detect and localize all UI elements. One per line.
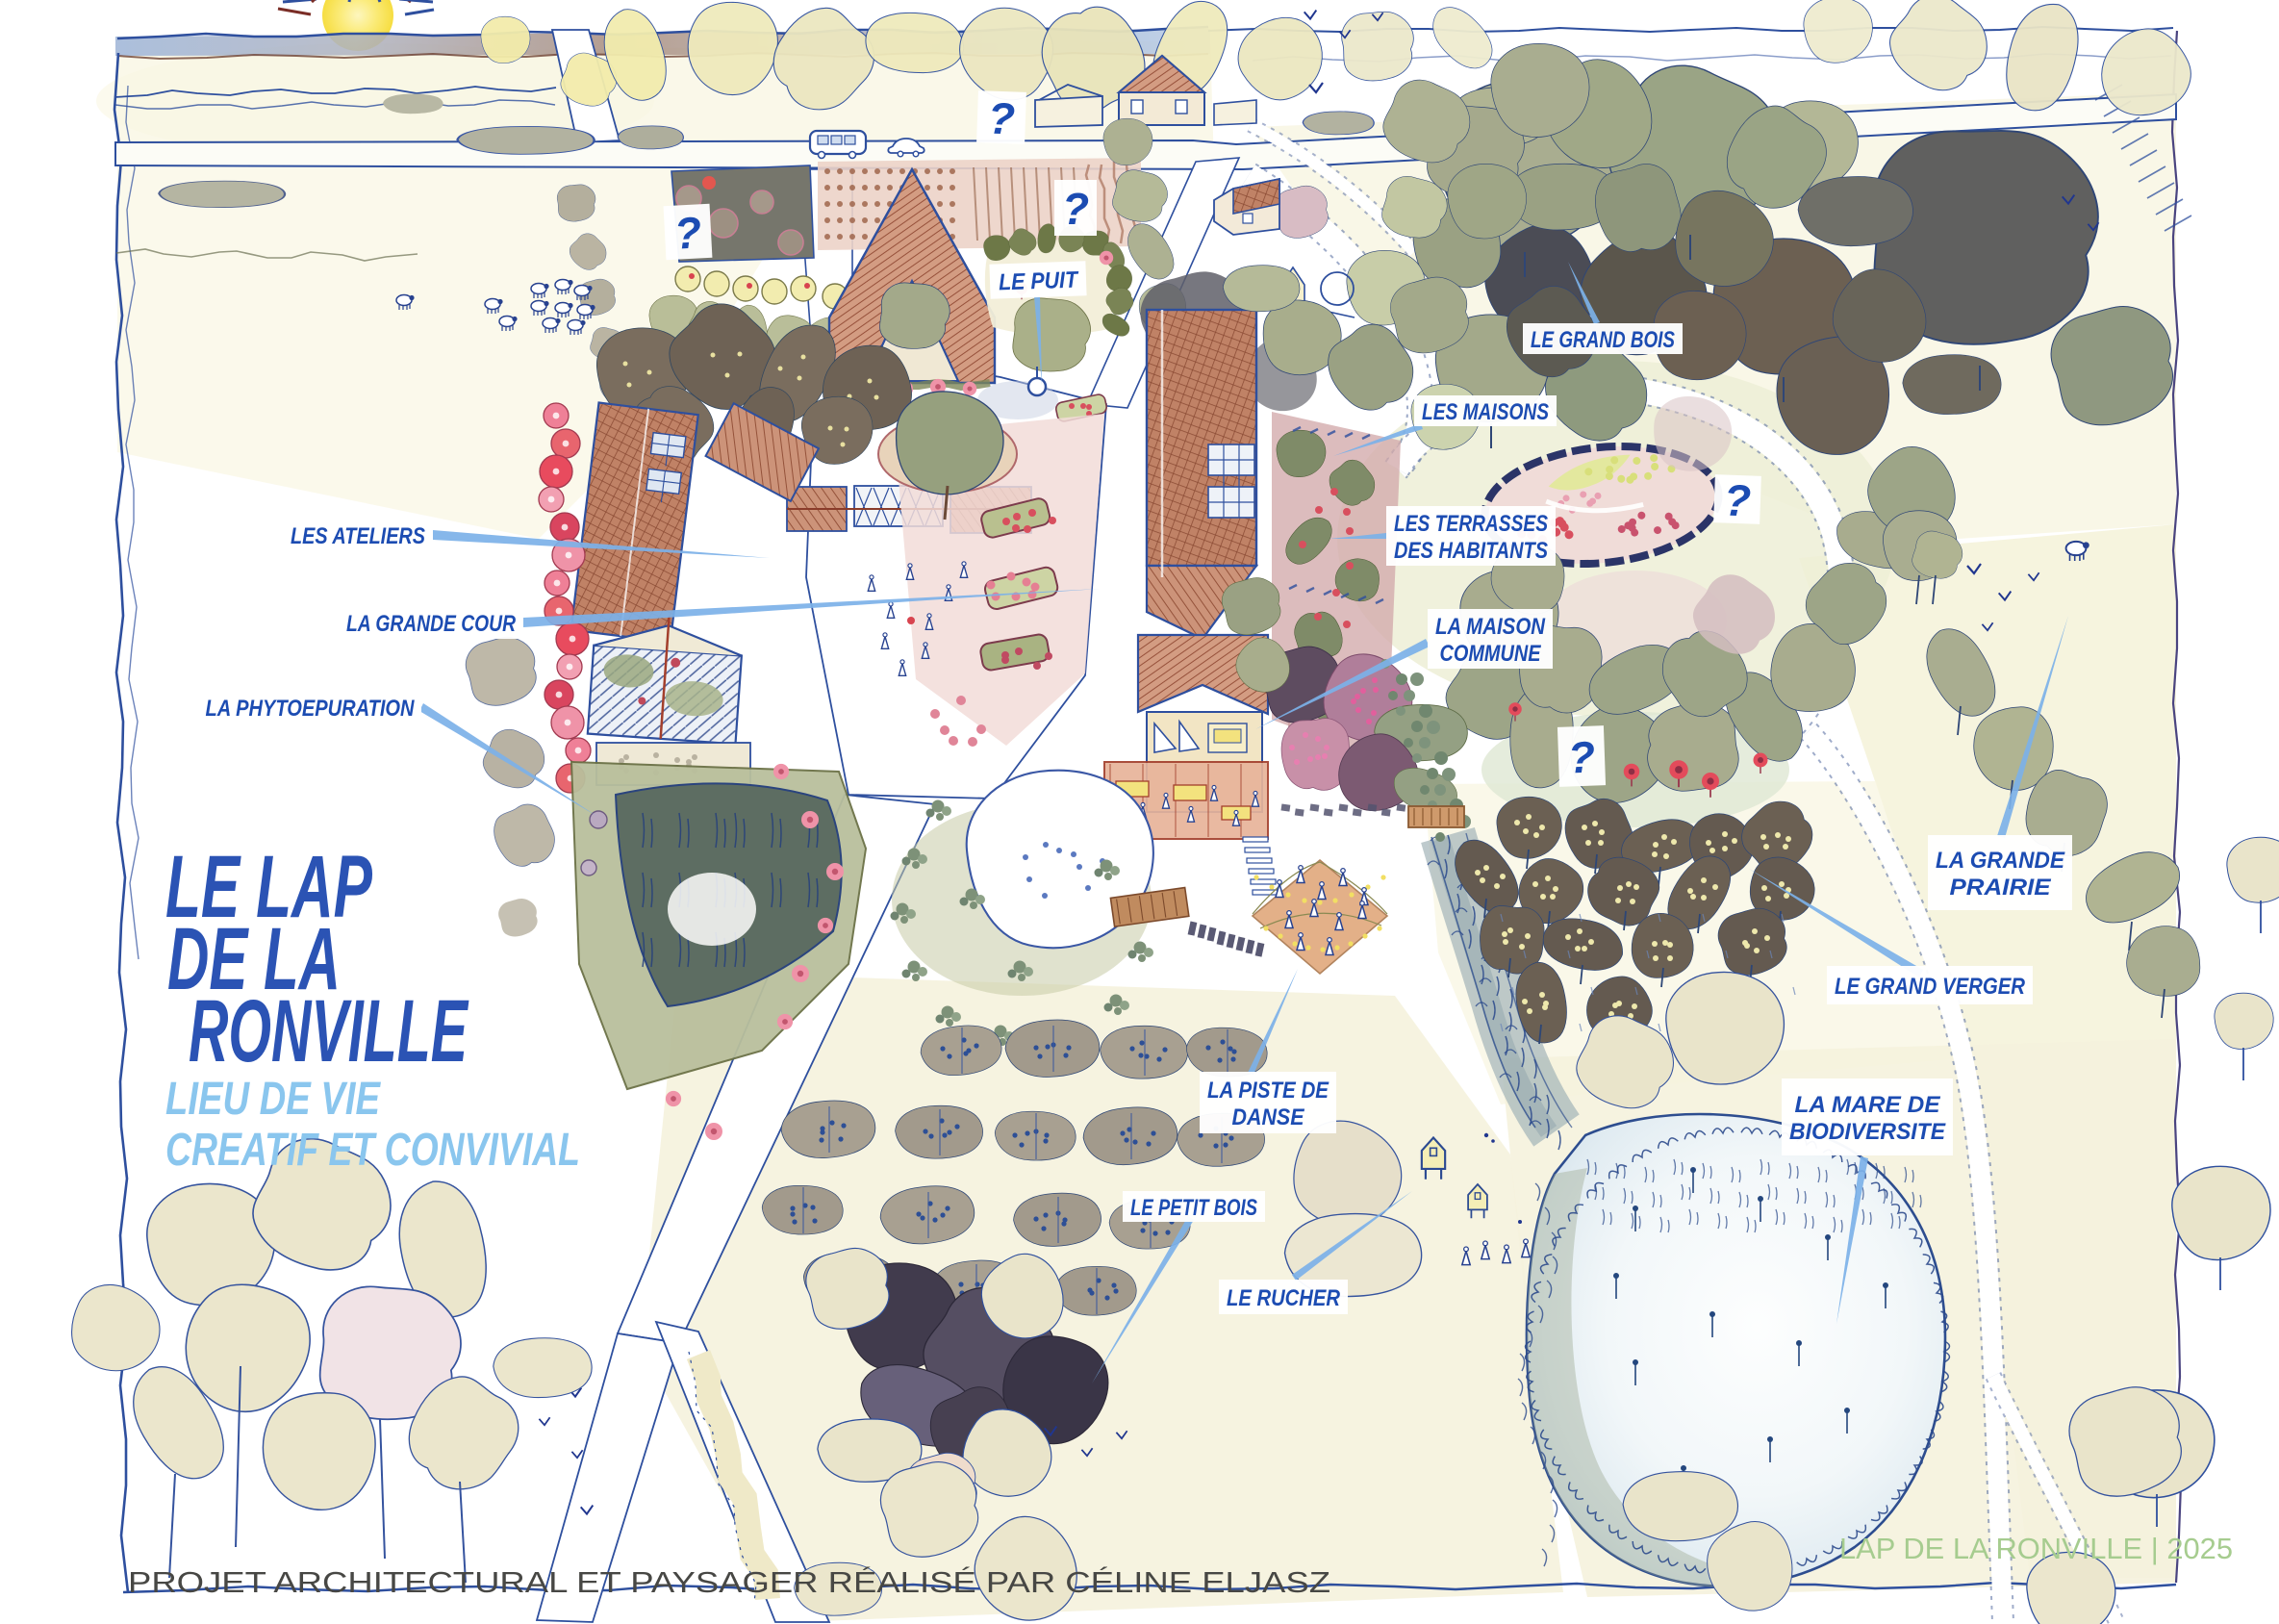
svg-text:LE PETIT BOIS: LE PETIT BOIS xyxy=(1130,1195,1257,1221)
svg-text:LA GRANDE: LA GRANDE xyxy=(1936,848,2065,874)
svg-text:PRAIRIE: PRAIRIE xyxy=(1950,875,2052,901)
svg-text:DES HABITANTS: DES HABITANTS xyxy=(1394,538,1548,564)
svg-text:LA GRANDE COUR: LA GRANDE COUR xyxy=(346,611,517,637)
svg-text:?: ? xyxy=(1723,475,1752,526)
svg-text:COMMUNE: COMMUNE xyxy=(1440,641,1542,667)
svg-text:?: ? xyxy=(987,93,1016,144)
svg-text:PROJET ARCHITECTURAL ET PAYSAG: PROJET ARCHITECTURAL ET PAYSAGER RÉALISÉ… xyxy=(128,1565,1330,1599)
svg-text:LIEU DE VIE: LIEU DE VIE xyxy=(165,1074,382,1125)
svg-text:LE GRAND VERGER: LE GRAND VERGER xyxy=(1835,974,2026,1000)
svg-text:LA MAISON: LA MAISON xyxy=(1435,614,1546,640)
svg-text:LE PUIT: LE PUIT xyxy=(999,267,1080,296)
svg-text:LE RUCHER: LE RUCHER xyxy=(1227,1285,1341,1311)
svg-text:LE GRAND BOIS: LE GRAND BOIS xyxy=(1531,327,1675,353)
svg-text:DANSE: DANSE xyxy=(1232,1104,1305,1130)
svg-text:LA PISTE DE: LA PISTE DE xyxy=(1207,1078,1329,1104)
svg-text:RONVILLE: RONVILLE xyxy=(189,982,469,1080)
svg-text:LES TERRASSES: LES TERRASSES xyxy=(1394,511,1548,537)
svg-text:BIODIVERSITE: BIODIVERSITE xyxy=(1789,1119,1946,1145)
svg-text:?: ? xyxy=(673,207,703,258)
svg-text:LA PHYTOEPURATION: LA PHYTOEPURATION xyxy=(206,696,416,722)
svg-text:LES MAISONS: LES MAISONS xyxy=(1422,399,1549,425)
svg-text:LA MARE DE: LA MARE DE xyxy=(1795,1092,1941,1118)
svg-text:CREATIF ET CONVIVIAL: CREATIF ET CONVIVIAL xyxy=(165,1125,580,1176)
svg-text:LAP DE LA RONVILLE | 2025: LAP DE LA RONVILLE | 2025 xyxy=(1839,1532,2233,1565)
svg-text:LES ATELIERS: LES ATELIERS xyxy=(291,523,425,549)
svg-text:?: ? xyxy=(1567,732,1596,783)
svg-text:?: ? xyxy=(1062,184,1089,234)
